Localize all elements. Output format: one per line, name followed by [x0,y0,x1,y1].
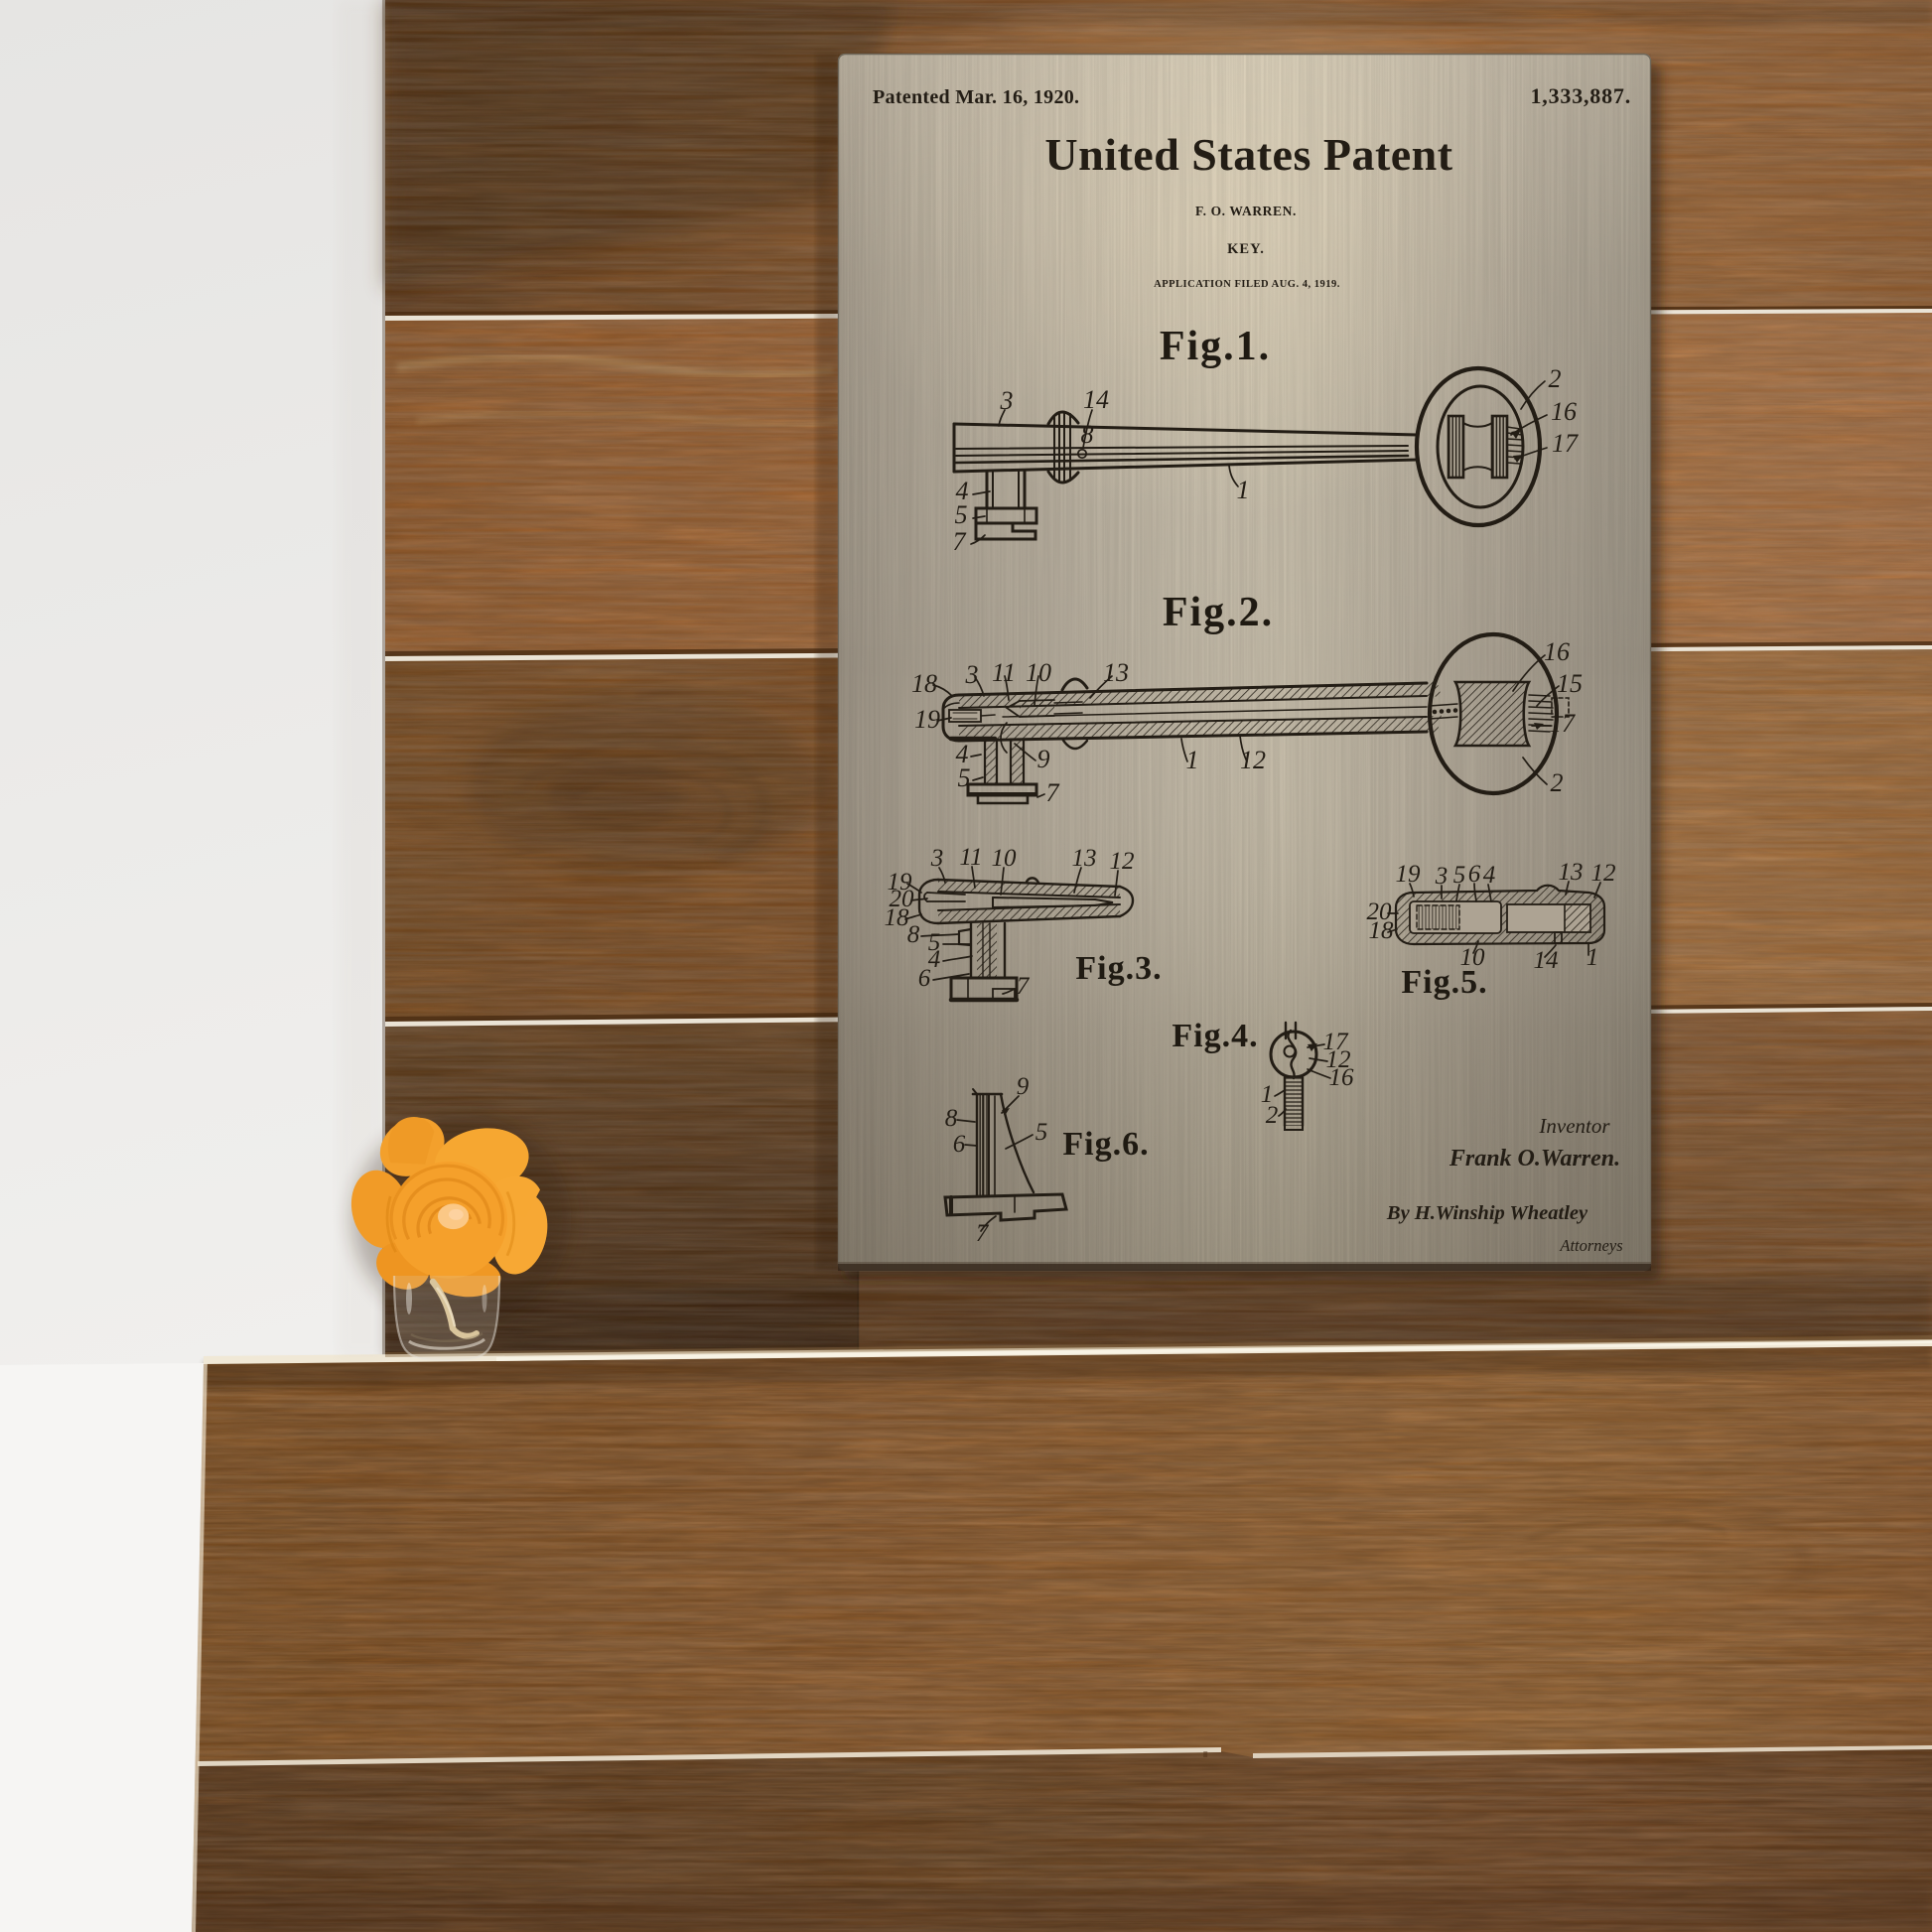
svg-text:10: 10 [992,845,1018,872]
svg-text:12: 12 [1110,848,1135,875]
svg-text:8: 8 [945,1105,958,1132]
svg-text:18: 18 [1369,917,1395,944]
svg-text:8: 8 [1081,420,1094,449]
svg-text:7: 7 [1017,973,1031,1000]
svg-text:7: 7 [953,527,967,556]
svg-text:19: 19 [914,705,940,734]
svg-text:16: 16 [1544,637,1570,666]
svg-text:Fig.1.: Fig.1. [1160,324,1271,369]
svg-text:15: 15 [1557,669,1583,698]
svg-text:5: 5 [958,763,971,792]
svg-text:Fig.4.: Fig.4. [1172,1018,1258,1054]
svg-text:3: 3 [965,660,979,689]
svg-text:Frank O.Warren.: Frank O.Warren. [1449,1146,1620,1172]
svg-text:10: 10 [1460,944,1486,971]
svg-text:1: 1 [1186,746,1199,774]
svg-text:16: 16 [1329,1064,1355,1091]
svg-text:9: 9 [1037,745,1050,773]
svg-text:17: 17 [1552,429,1579,458]
svg-text:18: 18 [911,669,937,698]
svg-text:7: 7 [976,1220,990,1247]
svg-text:12: 12 [1240,746,1266,774]
svg-text:Patented Mar. 16, 1920.: Patented Mar. 16, 1920. [873,86,1079,108]
svg-text:1: 1 [1587,944,1599,971]
svg-text:6: 6 [1468,861,1481,888]
svg-text:5: 5 [1453,862,1466,889]
svg-text:Fig.2.: Fig.2. [1163,590,1274,635]
svg-text:3: 3 [1000,386,1014,415]
svg-text:12: 12 [1591,860,1616,887]
svg-text:Inventor: Inventor [1538,1114,1610,1138]
svg-text:18: 18 [885,904,910,931]
svg-text:Fig.3.: Fig.3. [1075,950,1162,987]
svg-text:19: 19 [1396,861,1422,888]
svg-text:8: 8 [907,921,920,948]
svg-text:Fig.6.: Fig.6. [1062,1126,1149,1163]
svg-text:14: 14 [1083,385,1109,414]
svg-text:7: 7 [1046,778,1060,807]
svg-text:1,333,887.: 1,333,887. [1531,83,1632,108]
svg-text:10: 10 [1026,658,1051,687]
svg-text:6: 6 [953,1131,966,1158]
svg-text:11: 11 [959,844,982,871]
svg-text:13: 13 [1072,845,1097,872]
svg-text:3: 3 [930,845,944,872]
svg-text:9: 9 [1017,1073,1030,1100]
svg-text:By H.Winship Wheatley: By H.Winship Wheatley [1386,1202,1588,1224]
svg-text:F. O. WARREN.: F. O. WARREN. [1195,204,1297,218]
svg-text:2: 2 [1551,768,1564,797]
svg-text:4: 4 [1483,862,1496,889]
svg-text:16: 16 [1551,397,1577,426]
svg-text:APPLICATION FILED AUG. 4, 1919: APPLICATION FILED AUG. 4, 1919. [1154,279,1340,290]
svg-text:14: 14 [1534,947,1559,974]
svg-text:5: 5 [955,500,968,529]
svg-text:3: 3 [1435,863,1449,890]
svg-text:Attorneys: Attorneys [1559,1236,1622,1255]
svg-text:5: 5 [1035,1119,1048,1146]
svg-text:2: 2 [1266,1102,1279,1129]
svg-text:17: 17 [1549,709,1576,738]
svg-text:6: 6 [918,965,931,992]
svg-text:United States Patent: United States Patent [1044,129,1452,180]
svg-text:11: 11 [992,658,1016,687]
svg-text:13: 13 [1103,658,1129,687]
svg-text:13: 13 [1559,859,1584,886]
svg-text:KEY.: KEY. [1227,241,1265,257]
svg-text:2: 2 [1549,364,1562,393]
svg-text:1: 1 [1237,476,1250,504]
